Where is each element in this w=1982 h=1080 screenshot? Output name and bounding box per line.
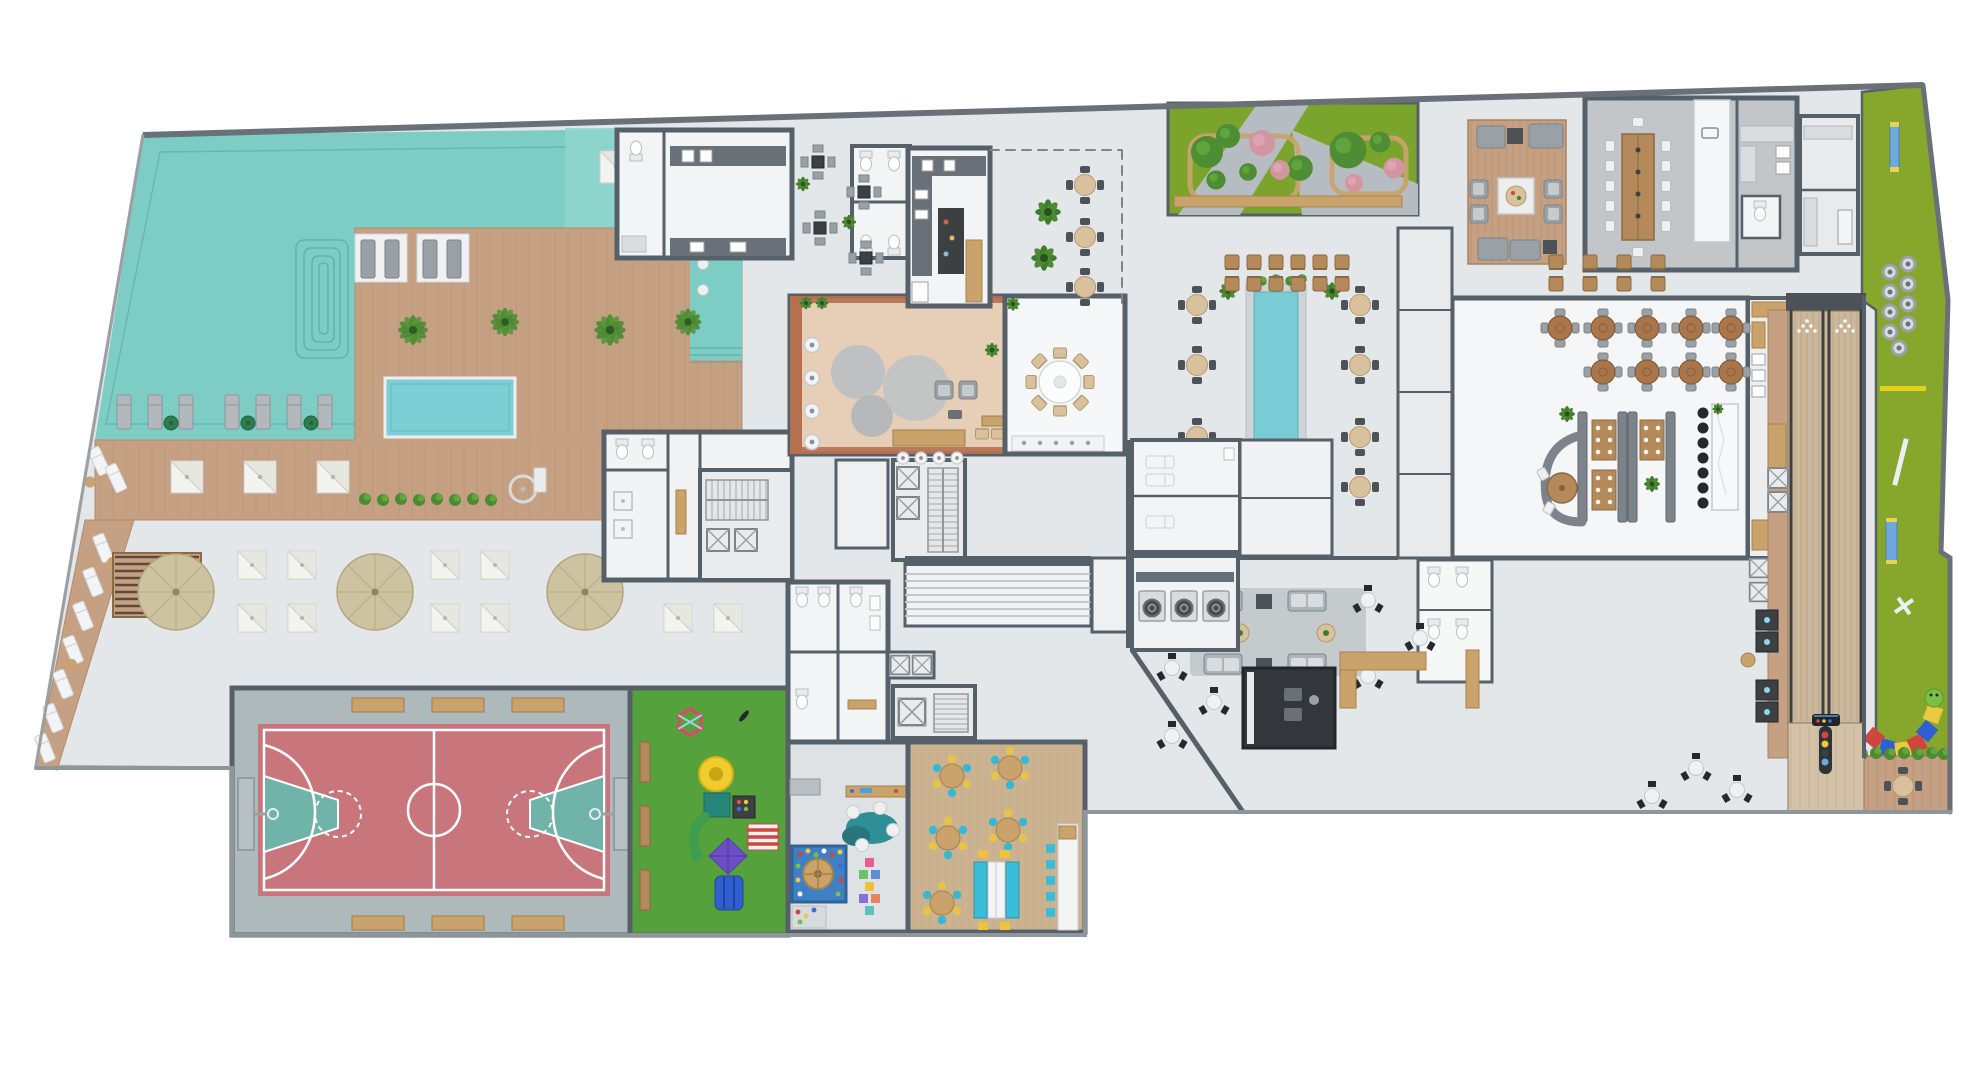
circle: [933, 780, 941, 788]
rect: [1672, 323, 1679, 333]
circle: [959, 842, 967, 850]
buffet-dish: [1038, 441, 1042, 445]
circle: [1176, 600, 1193, 617]
waiting-chair: [1225, 277, 1239, 291]
drain: [621, 527, 625, 531]
circle: [963, 780, 971, 788]
circle: [1335, 137, 1351, 153]
rect: [1584, 367, 1591, 377]
terrace-umbrella: [238, 551, 266, 579]
table-decor: [1636, 214, 1641, 219]
plant: [842, 215, 856, 229]
meeting-chair: [1606, 161, 1615, 172]
pit-ball: [806, 849, 811, 854]
circle: [185, 475, 189, 479]
kids-bench: [1006, 862, 1019, 918]
circle: [996, 818, 1020, 842]
rect: [1372, 360, 1379, 370]
side-table: [1309, 695, 1319, 705]
rect: [815, 211, 825, 218]
rect: [1080, 197, 1090, 204]
rect: [1642, 340, 1652, 347]
circle: [1220, 128, 1231, 139]
counter: [1804, 198, 1817, 246]
circle: [944, 851, 952, 859]
circle: [1361, 593, 1376, 608]
circle: [801, 182, 806, 187]
rect: [1355, 346, 1365, 353]
caterpillar-head: [1925, 689, 1943, 707]
circle: [1888, 330, 1893, 335]
rect: [1192, 286, 1202, 293]
circle: [1413, 631, 1428, 646]
rect: [1628, 323, 1635, 333]
deck-umbrella: [244, 461, 276, 493]
appliance: [1752, 354, 1765, 365]
hopscotch-tile: [865, 882, 874, 891]
circle: [944, 817, 952, 825]
lobby-plant: [1035, 199, 1061, 225]
rect: [1291, 255, 1305, 269]
hoop-stand: [238, 778, 254, 850]
toilet: [642, 439, 654, 459]
stair-top-band: [905, 556, 1091, 566]
hopscotch-tile: [859, 870, 868, 879]
side-table: [1507, 128, 1523, 144]
circle: [606, 326, 614, 334]
panel-dot: [737, 807, 741, 811]
plant: [1559, 406, 1575, 422]
rect: [1662, 161, 1671, 172]
circle: [169, 421, 173, 425]
kids-pool: [385, 378, 515, 437]
circle: [1645, 789, 1660, 804]
pit-ball: [836, 892, 841, 897]
garden-tree: [1216, 124, 1240, 148]
rect: [801, 157, 808, 167]
pit-ball: [796, 864, 801, 869]
circle: [1075, 277, 1096, 298]
circle: [1208, 600, 1225, 617]
toilet: [1428, 619, 1440, 639]
pouf: [805, 371, 820, 386]
circle: [1931, 748, 1938, 755]
circle: [953, 891, 961, 899]
pantry-counter: [1752, 322, 1765, 348]
court-bench: [352, 698, 404, 712]
bar-stool: [1698, 453, 1709, 464]
circle: [1187, 295, 1208, 316]
rect: [1662, 221, 1671, 232]
waiting-chair: [1617, 255, 1631, 269]
rect: [861, 268, 871, 275]
circle: [1591, 360, 1615, 384]
booth-table: [1640, 420, 1664, 460]
sofa: [1477, 126, 1505, 148]
rect: [361, 240, 375, 278]
dining-chair: [1026, 376, 1036, 389]
side-table: [982, 416, 1006, 426]
rect: [1541, 323, 1548, 333]
balance-beam: [640, 742, 650, 782]
rect: [813, 172, 823, 179]
rect: [1642, 309, 1652, 316]
spiral-slide-core: [709, 767, 723, 781]
circle: [1893, 776, 1914, 797]
rect: [1364, 585, 1372, 591]
rect: [1247, 255, 1261, 269]
planter-hedge: [413, 494, 425, 506]
bar-stool: [951, 452, 963, 464]
rect: [1628, 367, 1635, 377]
bowling-ball: [1822, 719, 1826, 723]
rect: [814, 222, 826, 234]
circle: [1350, 477, 1371, 498]
rect: [1633, 118, 1644, 127]
booth-table: [1592, 470, 1616, 510]
circle: [991, 772, 999, 780]
rect: [1743, 323, 1750, 333]
waiting-chair: [1335, 277, 1349, 291]
elevator: [891, 656, 910, 675]
circle: [1165, 729, 1180, 744]
circle: [1006, 781, 1014, 789]
rect: [1651, 277, 1665, 291]
rect: [1341, 360, 1348, 370]
rect: [1146, 516, 1174, 528]
circle: [1021, 756, 1029, 764]
rect: [1662, 141, 1671, 152]
toilet: [796, 587, 808, 607]
circle: [1004, 843, 1012, 851]
sink: [870, 596, 880, 610]
sink-top: [915, 210, 928, 219]
shower-unit: [534, 468, 546, 492]
balance-beam: [640, 870, 650, 910]
waiting-chair: [1549, 255, 1563, 269]
circle: [443, 563, 447, 567]
circle: [300, 563, 304, 567]
circle: [929, 826, 937, 834]
circle: [436, 494, 443, 501]
circle: [472, 494, 479, 501]
circle: [990, 348, 995, 353]
circle: [955, 456, 959, 460]
circle: [409, 326, 417, 334]
rect: [1615, 323, 1622, 333]
pit-ball: [830, 853, 835, 858]
kids-stool: [1046, 892, 1055, 901]
garden-tree: [1239, 163, 1257, 181]
deck-hedge: [1912, 748, 1924, 760]
plant: [985, 343, 999, 357]
sofa: [1288, 591, 1326, 611]
rect: [1473, 208, 1484, 220]
buffet-dish: [1086, 441, 1090, 445]
rect: [1555, 309, 1565, 316]
spa-bed: [1146, 474, 1174, 486]
terracotta-band: [790, 447, 1005, 454]
circle: [1350, 427, 1371, 448]
circle: [1889, 749, 1896, 756]
rect: [1372, 482, 1379, 492]
lawn-bench: [1890, 124, 1899, 170]
rect: [1355, 377, 1365, 384]
circle: [454, 495, 461, 502]
rect: [1269, 277, 1283, 291]
buffet-dish: [1054, 441, 1058, 445]
circle: [938, 916, 946, 924]
court-bench: [432, 916, 484, 930]
in-pool-lounger: [225, 395, 239, 429]
circle: [309, 421, 313, 425]
rect: [1617, 277, 1631, 291]
plant: [800, 297, 813, 310]
rect: [1178, 360, 1185, 370]
kids-bench: [974, 862, 987, 918]
rect: [1313, 255, 1327, 269]
elevator: [1750, 559, 1769, 578]
side-table: [67, 659, 77, 669]
rect: [1080, 268, 1090, 275]
rect: [225, 395, 239, 429]
circle: [820, 301, 824, 305]
circle: [1387, 161, 1397, 171]
stepping-ball: [698, 285, 709, 296]
circle: [400, 494, 407, 501]
plant: [796, 177, 810, 191]
armchair: [1544, 205, 1562, 223]
circle: [250, 563, 254, 567]
rect: [1617, 255, 1631, 269]
table-decor: [1636, 192, 1641, 197]
bar-stool: [1698, 423, 1709, 434]
booth-bench: [1628, 412, 1637, 522]
kids-chair: [1000, 850, 1010, 858]
stair-south: [934, 694, 968, 732]
terrace-umbrella: [288, 551, 316, 579]
island-dish: [950, 236, 955, 241]
sofa: [1510, 240, 1540, 260]
circle: [1917, 749, 1924, 756]
toy: [860, 788, 872, 793]
circle: [1253, 134, 1265, 146]
rect: [1355, 286, 1365, 293]
rect: [256, 395, 270, 429]
rect: [1192, 317, 1202, 324]
meeting-chair: [1606, 201, 1615, 212]
ellipse: [617, 445, 628, 459]
circle: [1565, 412, 1570, 417]
planter-hedge: [359, 493, 371, 505]
deck-hedge: [1884, 748, 1896, 760]
booth-table: [1592, 420, 1616, 460]
rect: [1026, 376, 1036, 389]
ottoman: [948, 410, 962, 419]
toy: [796, 910, 801, 915]
play-mat-cap: [1886, 518, 1897, 522]
bench: [676, 490, 686, 534]
circle: [1291, 159, 1302, 170]
pit-ball: [838, 864, 843, 869]
pantry-counter: [1740, 126, 1794, 142]
waiting-chair: [1549, 277, 1563, 291]
circle: [998, 756, 1022, 780]
rect: [1335, 255, 1349, 269]
meeting-chair: [1606, 181, 1615, 192]
rect: [1372, 300, 1379, 310]
circle: [501, 318, 509, 326]
circle: [919, 456, 923, 460]
waiting-chair: [1313, 277, 1327, 291]
sink-top: [682, 150, 694, 162]
circle: [1273, 163, 1282, 172]
dining-chair: [1084, 376, 1094, 389]
rect: [803, 223, 810, 233]
sofa: [1478, 238, 1508, 260]
court-bench: [512, 916, 564, 930]
ellipse: [819, 593, 830, 607]
rect: [1209, 300, 1216, 310]
rect: [1355, 449, 1365, 456]
circle: [1689, 761, 1704, 776]
circle: [493, 616, 497, 620]
caterpillar-eye: [1930, 694, 1933, 697]
ellipse: [631, 141, 642, 155]
circle: [989, 834, 997, 842]
appliance: [1752, 370, 1765, 381]
in-pool-lounger: [179, 395, 193, 429]
rect: [1178, 300, 1185, 310]
kids-chair: [978, 922, 988, 930]
pool-cabana: [355, 234, 407, 282]
meeting-chair: [1662, 181, 1671, 192]
rect: [1686, 340, 1696, 347]
circle: [1242, 166, 1250, 174]
ellipse: [797, 695, 808, 709]
circle: [331, 475, 335, 479]
waiting-chair: [1313, 255, 1327, 269]
rect: [1416, 623, 1424, 629]
bowling-ball: [1816, 719, 1820, 723]
circle: [1207, 695, 1222, 710]
rect: [1726, 340, 1736, 347]
toilet: [850, 587, 862, 607]
rect: [1606, 141, 1615, 152]
rect: [828, 157, 835, 167]
rect: [1726, 309, 1736, 316]
toilet: [796, 689, 808, 709]
meeting-chair: [1662, 221, 1671, 232]
elevator: [707, 529, 729, 551]
bar-stool: [1698, 468, 1709, 479]
terrace-umbrella: [288, 604, 316, 632]
circle: [936, 826, 960, 850]
rect: [847, 187, 854, 197]
rect: [1355, 418, 1365, 425]
circle: [684, 318, 691, 325]
circle: [1906, 322, 1911, 327]
play-ring: [1883, 305, 1897, 319]
arcade-machine: [1756, 680, 1778, 700]
rect: [1341, 482, 1348, 492]
lounge-bar: [893, 430, 965, 446]
rect: [1192, 346, 1202, 353]
pouf: [805, 435, 820, 450]
bowling-ball: [1828, 719, 1832, 723]
pouf: [874, 802, 887, 815]
island-dish: [944, 220, 949, 225]
stove: [922, 160, 933, 171]
elevator: [899, 699, 925, 725]
table-decor: [1636, 148, 1641, 153]
theater-seat: [1284, 688, 1302, 701]
rect: [1648, 781, 1656, 787]
kids-chair: [1000, 922, 1010, 930]
circle: [443, 616, 447, 620]
elevator: [897, 467, 919, 489]
circle: [810, 376, 815, 381]
waiting-chair: [1651, 255, 1665, 269]
ellipse: [1457, 573, 1468, 587]
circle: [940, 764, 964, 788]
circle: [1187, 355, 1208, 376]
arcade-machine: [1756, 632, 1778, 652]
arcade-machine: [1756, 610, 1778, 630]
rect: [1606, 161, 1615, 172]
kids-stool: [1046, 860, 1055, 869]
rect: [1207, 658, 1222, 671]
terracotta-band: [790, 296, 802, 454]
pouf: [805, 338, 820, 353]
rect: [1572, 323, 1579, 333]
circle: [953, 907, 961, 915]
deck-umbrella: [317, 461, 349, 493]
rect: [1651, 255, 1665, 269]
circle: [1719, 360, 1743, 384]
meeting-chair: [1606, 141, 1615, 152]
play-mat: [1886, 520, 1897, 562]
in-pool-lounger: [117, 395, 131, 429]
rect: [1168, 653, 1176, 659]
rect: [1662, 201, 1671, 212]
rect: [1642, 384, 1652, 391]
circle: [1716, 407, 1720, 411]
garden-tree: [1330, 132, 1367, 169]
rect: [812, 156, 824, 168]
circle: [1764, 639, 1770, 645]
circle: [804, 301, 808, 305]
circle: [938, 882, 946, 890]
in-pool-lounger: [318, 395, 332, 429]
toilet: [630, 141, 642, 161]
kids-stool: [1046, 908, 1055, 917]
shower-head: [521, 487, 526, 492]
rect: [1583, 277, 1597, 291]
cabinet: [622, 236, 646, 252]
circle: [676, 616, 680, 620]
washing-machine: [1171, 591, 1197, 621]
pit-ball: [798, 852, 803, 857]
circle: [1650, 482, 1655, 487]
waiting-chair: [1247, 277, 1261, 291]
circle: [1730, 783, 1745, 798]
balance-beam: [640, 806, 650, 846]
meeting-chair: [1606, 221, 1615, 232]
rect: [830, 223, 837, 233]
circle: [582, 589, 589, 596]
circle: [1888, 290, 1893, 295]
